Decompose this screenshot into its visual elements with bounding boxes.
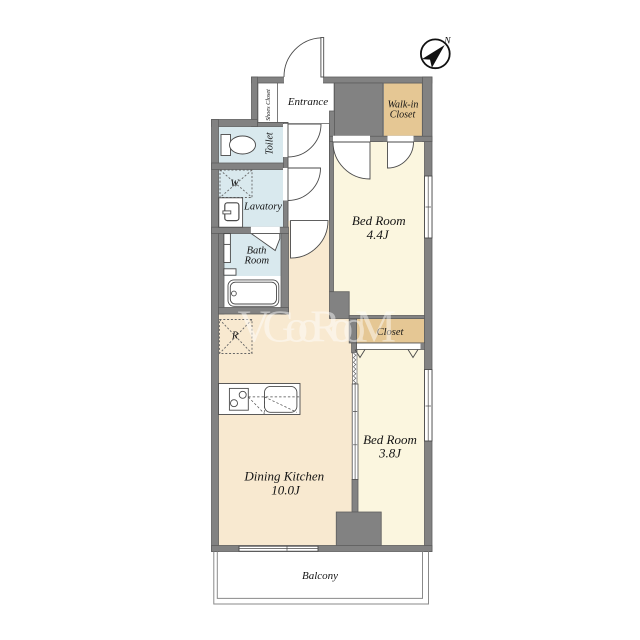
svg-text:Entrance: Entrance bbox=[287, 96, 328, 108]
svg-text:Lavatory: Lavatory bbox=[243, 202, 282, 213]
svg-text:3.8J: 3.8J bbox=[378, 446, 402, 461]
svg-text:GooRooM: GooRooM bbox=[263, 300, 397, 351]
svg-text:N: N bbox=[443, 37, 451, 47]
svg-text:Toilet: Toilet bbox=[265, 132, 276, 155]
svg-text:Dining Kitchen: Dining Kitchen bbox=[243, 469, 324, 484]
svg-text:10.0J: 10.0J bbox=[271, 483, 301, 498]
svg-text:Shoes Closet: Shoes Closet bbox=[265, 89, 272, 121]
svg-text:Room: Room bbox=[244, 256, 270, 267]
svg-text:Bed Room: Bed Room bbox=[352, 213, 406, 228]
svg-text:Balcony: Balcony bbox=[302, 570, 338, 582]
svg-text:Closet: Closet bbox=[390, 109, 416, 120]
svg-text:4.4J: 4.4J bbox=[367, 227, 390, 242]
